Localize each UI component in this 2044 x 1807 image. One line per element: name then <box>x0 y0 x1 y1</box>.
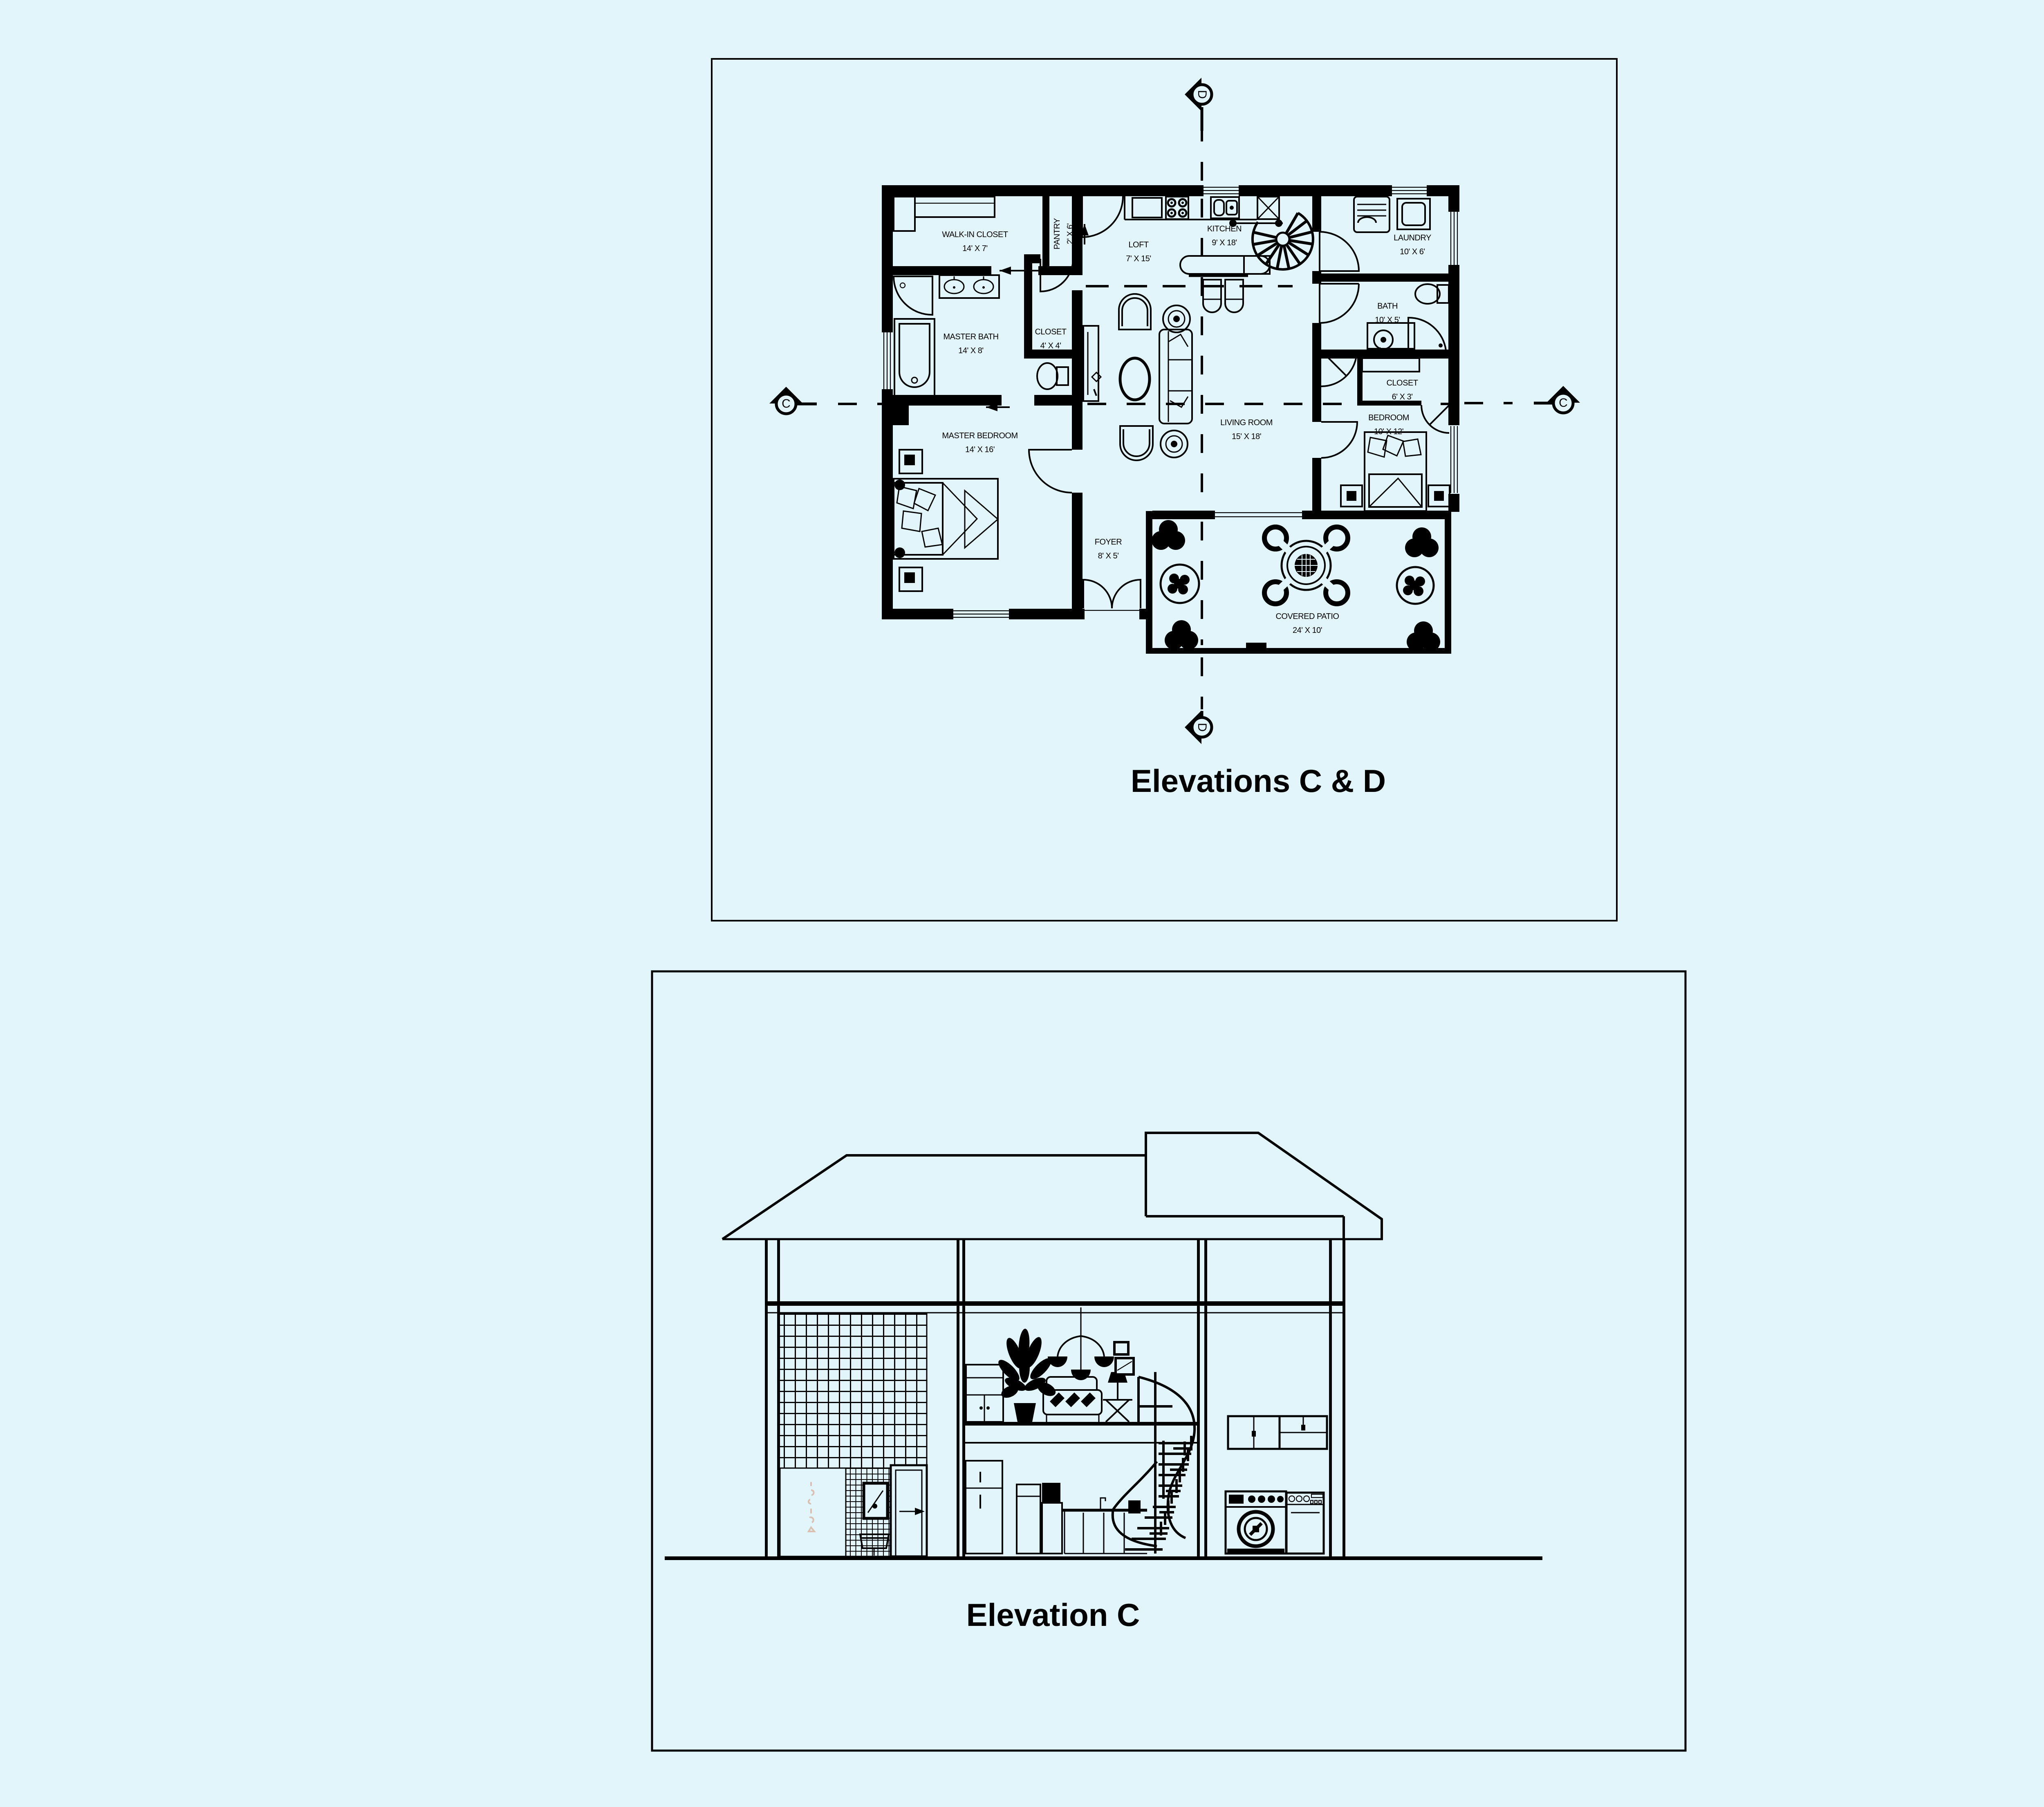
svg-text:C: C <box>782 397 791 410</box>
svg-text:6' X 3': 6' X 3' <box>1392 392 1413 401</box>
svg-text:14' X 7': 14' X 7' <box>962 244 987 253</box>
svg-text:4' X 4': 4' X 4' <box>1040 341 1061 350</box>
svg-text:D: D <box>1195 723 1209 732</box>
svg-text:LIVING ROOM: LIVING ROOM <box>1220 418 1273 427</box>
svg-text:LOFT: LOFT <box>1128 240 1148 249</box>
svg-text:14' X 8': 14' X 8' <box>958 346 983 355</box>
svg-text:KITCHEN: KITCHEN <box>1207 224 1242 233</box>
svg-text:10' X 6': 10' X 6' <box>1400 247 1425 256</box>
svg-text:PANTRY: PANTRY <box>1053 218 1062 249</box>
svg-text:7' X 15': 7' X 15' <box>1126 254 1151 263</box>
svg-text:Elevation C: Elevation C <box>966 1597 1140 1633</box>
svg-text:COVERED PATIO: COVERED PATIO <box>1275 612 1339 621</box>
svg-text:C: C <box>1559 396 1568 410</box>
svg-text:14' X 16': 14' X 16' <box>965 445 995 454</box>
svg-text:MASTER BEDROOM: MASTER BEDROOM <box>942 431 1018 440</box>
svg-text:Elevations C & D: Elevations C & D <box>1131 763 1386 799</box>
svg-text:BEDROOM: BEDROOM <box>1368 413 1409 422</box>
svg-text:CLOSET: CLOSET <box>1386 379 1418 388</box>
svg-text:LAUNDRY: LAUNDRY <box>1394 233 1431 242</box>
svg-text:8' X 5': 8' X 5' <box>1098 552 1119 560</box>
svg-text:WALK-IN CLOSET: WALK-IN CLOSET <box>942 230 1008 239</box>
svg-text:24' X 10': 24' X 10' <box>1293 626 1322 635</box>
svg-text:D: D <box>1195 90 1209 99</box>
svg-text:FOYER: FOYER <box>1095 538 1122 547</box>
svg-text:2' X 6': 2' X 6' <box>1066 224 1075 244</box>
svg-text:BATH: BATH <box>1377 302 1398 311</box>
svg-text:MASTER BATH: MASTER BATH <box>943 332 998 341</box>
svg-text:CLOSET: CLOSET <box>1035 327 1066 336</box>
svg-text:15' X 18': 15' X 18' <box>1232 432 1261 441</box>
svg-text:9' X 18': 9' X 18' <box>1212 238 1237 247</box>
